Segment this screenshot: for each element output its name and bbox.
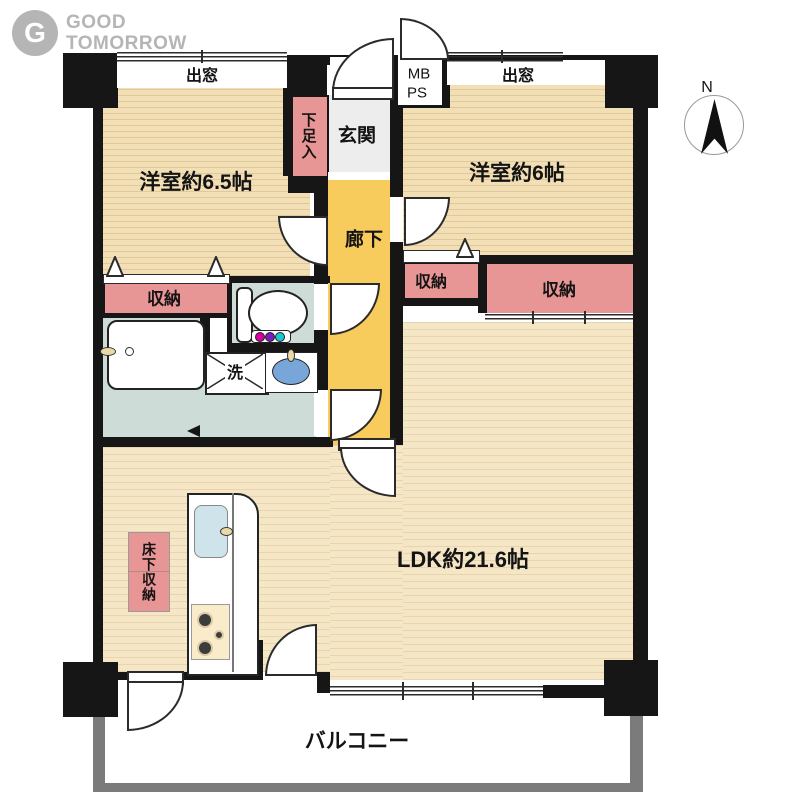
- bay-window-left-label: 出窓: [186, 62, 218, 86]
- closet3-label: 収納: [542, 276, 576, 301]
- wall-toilet-left: [227, 276, 232, 352]
- wall-closet1-bottom: [93, 313, 232, 318]
- closet1-door-marker-2: [207, 256, 225, 277]
- bathtub: [107, 320, 205, 390]
- balcony-wall-left: [93, 716, 105, 792]
- wall-corridor-left-a: [314, 176, 328, 216]
- logo-line1: GOOD: [66, 12, 187, 33]
- vanity-faucet: [287, 349, 295, 362]
- logo: G GOOD TOMORROW: [12, 10, 232, 60]
- balcony-label: バルコニー: [305, 725, 410, 755]
- corridor-label: 廊下: [345, 225, 383, 252]
- floorplan: MB PS 洗 洋室約6.5帖 洋室約6帖: [0, 0, 800, 800]
- washroom-door-gap: [314, 390, 328, 436]
- logo-line2: TOMORROW: [66, 33, 187, 54]
- mbps-door-arc: [400, 18, 449, 60]
- kitchen-counter-divider: [232, 493, 234, 672]
- bathtub-faucet: [100, 347, 116, 356]
- toilet-button-purple: [265, 332, 275, 342]
- wall-washroom-bottom: [93, 437, 333, 447]
- closet2-label: 収納: [415, 268, 447, 292]
- bedroom1-label: 洋室約6.5帖: [139, 166, 252, 196]
- entrance-label: 玄関: [338, 121, 376, 148]
- stove-burner-3: [197, 640, 213, 656]
- closet2-door-marker: [456, 238, 474, 258]
- entrance-door-leaf: [332, 87, 394, 100]
- entrance-door-arc: [332, 38, 394, 92]
- toilet-door-gap: [314, 284, 328, 330]
- wall-toilet-bottom: [227, 343, 316, 352]
- closet3-sliding-lines: [485, 314, 633, 321]
- ps-label: PS: [407, 85, 427, 102]
- pillar-bottom-left: [63, 662, 118, 717]
- washer-label: 洗: [225, 359, 245, 383]
- wall-closets-top: [478, 255, 633, 262]
- balcony-wall-bottom: [93, 783, 643, 792]
- bathtub-drain: [125, 347, 134, 356]
- stove-burner-1: [197, 612, 213, 628]
- bay-window-right-label: 出窓: [502, 62, 534, 86]
- balcony-window-glass: [330, 686, 543, 697]
- vanity-basin: [272, 358, 310, 385]
- compass: N: [660, 70, 770, 180]
- balcony-wall-right: [630, 716, 643, 792]
- wall-closet-divider: [478, 255, 485, 313]
- kitchen-faucet: [220, 527, 233, 536]
- shoe-storage-label: 下足入: [298, 112, 319, 160]
- wall-corridor-right-b: [390, 242, 403, 445]
- ldk-floor-main: [403, 322, 633, 687]
- wall-left: [93, 55, 103, 662]
- wall-bottom-mid: [317, 672, 330, 693]
- bedroom2-label: 洋室約6帖: [469, 157, 565, 187]
- entrance-step: [328, 172, 390, 180]
- closet3-mullion-1: [532, 311, 534, 324]
- ldk-label: LDK約21.6帖: [397, 542, 529, 574]
- stove-burner-2: [214, 630, 224, 640]
- pillar-bottom-right: [604, 660, 658, 716]
- logo-g-icon: G: [12, 10, 58, 56]
- pillar-top-right: [605, 55, 658, 108]
- wall-right: [633, 107, 648, 660]
- toilet-button-cyan: [275, 332, 285, 342]
- toilet-button-magenta: [255, 332, 265, 342]
- bay-window-right-glass: [447, 52, 563, 62]
- closet1-label: 収納: [147, 285, 181, 310]
- mb-label: MB: [408, 66, 431, 83]
- closet3-mullion-2: [584, 311, 586, 324]
- closet1-door-marker-1: [106, 256, 124, 277]
- balcony-window-mullion-2: [472, 682, 474, 700]
- wall-bottom-right: [543, 685, 604, 698]
- underfloor-storage-label: 床下収納: [139, 542, 159, 602]
- wall-entrance-top: [291, 55, 327, 95]
- bedroom2-door-gap: [390, 197, 403, 242]
- balcony-window-mullion-1: [402, 682, 404, 700]
- wall-corridor-right-a: [390, 95, 403, 197]
- wall-closet2-bottom: [397, 298, 485, 306]
